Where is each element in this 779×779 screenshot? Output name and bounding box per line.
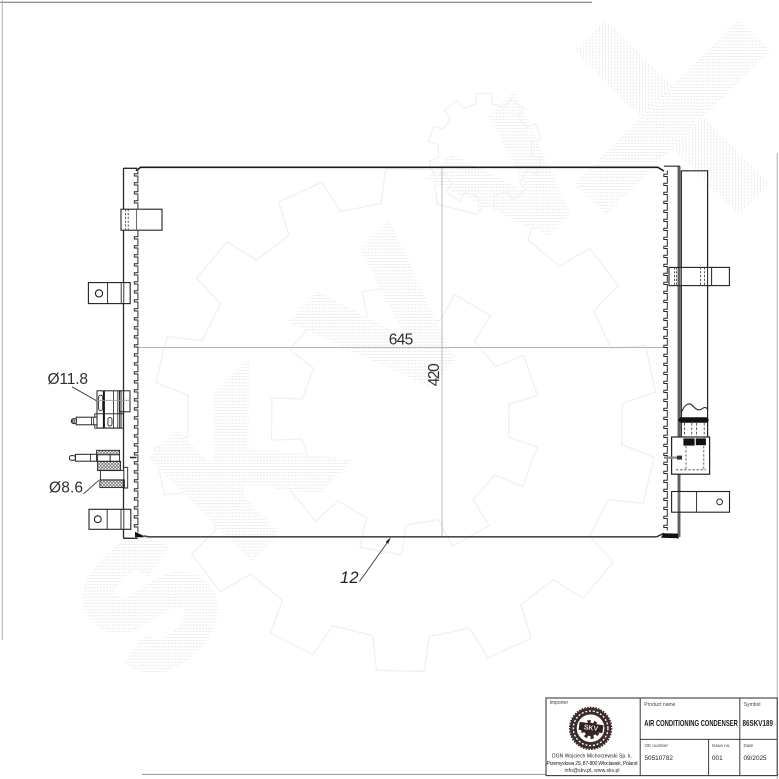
- svg-text:V: V: [267, 199, 513, 445]
- svg-text:Symbol: Symbol: [744, 702, 761, 708]
- svg-text:001: 001: [712, 755, 723, 762]
- svg-text:Date: Date: [744, 743, 754, 748]
- svg-text:50510782: 50510782: [645, 755, 674, 762]
- svg-text:OE number: OE number: [645, 743, 669, 748]
- svg-text:86SKV189: 86SKV189: [743, 719, 774, 728]
- svg-text:Product name: Product name: [644, 702, 675, 708]
- svg-text:420: 420: [426, 363, 443, 386]
- svg-text:Przemyslowa 29, 87-800 Wloclaw: Przemyslowa 29, 87-800 Wloclawek, Poland: [547, 761, 638, 767]
- svg-text:Issue no.: Issue no.: [712, 743, 731, 748]
- svg-text:info@skv.pl, www.skv.pl: info@skv.pl, www.skv.pl: [565, 768, 620, 774]
- svg-text:Importer: Importer: [550, 700, 569, 706]
- svg-text:AIR CONDITIONING CONDENSER: AIR CONDITIONING CONDENSER: [644, 719, 738, 728]
- svg-text:DGN Wojciech Michorzewski Sp.: DGN Wojciech Michorzewski Sp. k.: [552, 753, 632, 759]
- svg-text:12: 12: [340, 569, 359, 587]
- svg-text:09/2025: 09/2025: [744, 755, 768, 762]
- svg-text:645: 645: [389, 332, 414, 349]
- svg-text:Ø8.6: Ø8.6: [49, 480, 83, 497]
- svg-text:Ø11.8: Ø11.8: [48, 371, 89, 388]
